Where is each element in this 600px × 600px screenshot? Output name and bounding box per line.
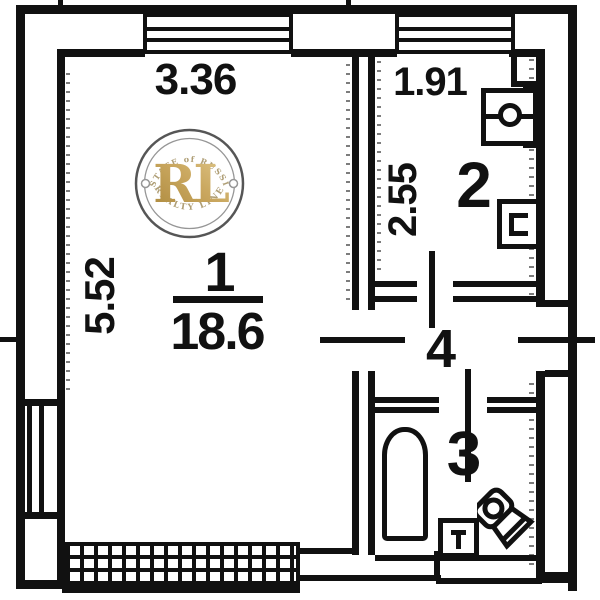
room3-number-label: 3 <box>434 424 494 486</box>
wall-left-outer <box>16 5 25 589</box>
dimension-tick-top-left <box>58 0 63 14</box>
wall-hatch <box>66 70 70 390</box>
window-glazing-line <box>147 38 289 42</box>
window-glazing-line <box>399 38 511 42</box>
wall-bottom-mid-top <box>297 548 358 554</box>
washbasin-icon <box>438 518 479 558</box>
realty-line-watermark: ESTATE of RUSSIA REALTY LINE RL <box>132 126 247 241</box>
dimension-room2-depth: 2.55 <box>381 140 425 260</box>
window-icon-room2 <box>395 13 515 54</box>
door-threshold-room2-hall <box>429 251 435 328</box>
wall-bottom-mid-bottom <box>297 575 441 581</box>
room1-number-label: 1 <box>180 244 260 300</box>
bathtub-icon <box>382 427 428 541</box>
dimension-room1-depth: 5.52 <box>77 231 123 361</box>
entrance-jamb-top <box>545 300 568 307</box>
wall-right-bottom-cap <box>536 572 577 583</box>
room2-number-label: 2 <box>444 153 504 217</box>
watermark-monogram: RL <box>153 154 229 215</box>
toilet-icon <box>477 486 541 562</box>
window-glazing-line <box>147 27 289 31</box>
wall-top-inner-pier <box>291 49 397 57</box>
window-glazing-line <box>399 27 511 31</box>
kitchen-sink-basin <box>509 213 528 236</box>
floor-plan: 3.36 5.52 1.91 2.55 1 18.6 2 3 4 ESTATE … <box>0 0 600 600</box>
room1-area-label: 18.6 <box>147 306 287 358</box>
wall-hall-bath-bottom-left <box>375 407 439 413</box>
bathroom-outer-line <box>436 578 542 584</box>
partition-room1-right-line-upper <box>368 49 375 310</box>
wall-top-inner-left <box>60 49 145 57</box>
wall-room2-hall-bottom-left <box>375 296 417 302</box>
wall-hatch <box>346 60 350 300</box>
entrance-door-threshold <box>518 337 595 343</box>
window-glazing-line <box>39 405 44 513</box>
room1-fraction-bar <box>173 296 263 303</box>
entrance-jamb-bottom <box>545 370 568 377</box>
dimension-room1-width: 3.36 <box>123 58 268 102</box>
wall-room2-hall-bottom-right <box>453 296 541 302</box>
wall-room2-hall-top-left <box>375 281 417 287</box>
dimension-tick-top-mid <box>346 0 351 14</box>
wall-left-inner <box>57 49 65 583</box>
stove-burner-icon <box>498 103 522 127</box>
left-window-cap-bottom <box>16 512 65 519</box>
partition-room1-left-line-upper <box>352 49 359 310</box>
washbasin-tap-stem <box>456 530 461 549</box>
wall-hall-bath-top-left <box>375 397 439 403</box>
stove-icon <box>481 88 538 146</box>
window-icon-room1 <box>143 13 293 54</box>
room4-number-label: 4 <box>411 322 471 376</box>
window-icon-left-wall <box>27 405 32 513</box>
hatched-wall-strip <box>62 542 300 589</box>
door-threshold-room1-hall <box>320 337 405 343</box>
partition-room1-right-line-lower <box>368 371 375 555</box>
dimension-tick-left <box>0 337 16 342</box>
dimension-room2-width: 1.91 <box>380 62 480 102</box>
partition-room1-left-line-lower <box>352 371 359 555</box>
wall-right-outer <box>568 5 577 591</box>
wall-room2-hall-top-right <box>453 281 541 287</box>
